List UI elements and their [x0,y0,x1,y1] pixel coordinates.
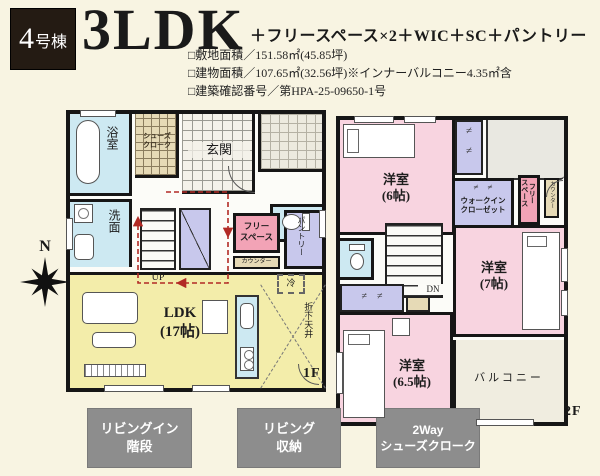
window [336,352,343,394]
building-number-suffix: 号棟 [35,27,67,51]
free-space-2f-label: フリー スペース [520,179,535,207]
bedroom-7-label: 洋室 (7帖) [465,260,523,293]
confirmation-number: □建築確認番号／第HPA-25-09650-1号 [188,82,512,100]
walk-in-closet-label: ウォークイン クローゼット [452,196,514,215]
compass-north-label: N [28,238,62,256]
side-table-icon [392,318,410,336]
compass-icon [19,256,71,308]
bedroom-6-label: 洋室 (6帖) [360,172,432,205]
toilet-icon-2f [345,244,369,274]
feature-badge-living-in-stairs: リビングイン 階段 [87,408,192,468]
stairs-down-label: DN [418,284,448,295]
window [404,116,436,123]
counter-2f-label: カウンター [548,181,555,209]
site-area: □敷地面積／151.58㎡(45.85坪) [188,46,512,64]
feature-badge-living-storage: リビング 収納 [237,408,341,468]
layout-subtitle: ＋フリースペース×2＋WIC＋SC＋パントリー [250,22,587,46]
window [561,290,568,316]
feature-badge-2way-shoes-cloak: 2Way シューズクローク [376,408,480,468]
building-number: 4 [19,24,34,54]
floor-label-2f: 2F [564,404,582,420]
window [561,248,568,282]
floorplan-2f: 洋室 (6帖) ≠ ≠ ≠ ≠ ウォークイン クローゼット フリー スペース カ… [336,116,568,426]
wic-hanger-marks: ≠ ≠ [452,182,514,193]
closet-hanger: ≠ ≠ [455,120,483,175]
property-details: □敷地面積／151.58㎡(45.85坪) □建物面積／107.65㎡(32.5… [188,46,512,100]
floorplan-1f: 浴室 シューズ クローク 玄関 洗面 UP フリー スペース カウンター パント… [66,110,326,392]
building-number-badge: 4 号棟 [10,8,76,70]
bed-icon [343,124,415,158]
counter-box [406,296,430,312]
bedroom-65-label: 洋室 (6.5帖) [376,358,448,391]
living-in-stairs-flow-line [70,114,322,388]
floorplan-flyer: 4 号棟 3LDK ＋フリースペース×2＋WIC＋SC＋パントリー □敷地面積／… [0,0,600,476]
balcony-label: バルコニー [458,372,560,386]
window [476,419,534,426]
open-void [486,120,564,180]
closet-bedroom-65: ≠ ≠ [340,284,404,312]
building-area: □建物面積／107.65㎡(32.56坪)※インナーバルコニー4.35㎡含 [188,64,512,82]
bed-icon [522,232,560,330]
window [354,116,394,123]
